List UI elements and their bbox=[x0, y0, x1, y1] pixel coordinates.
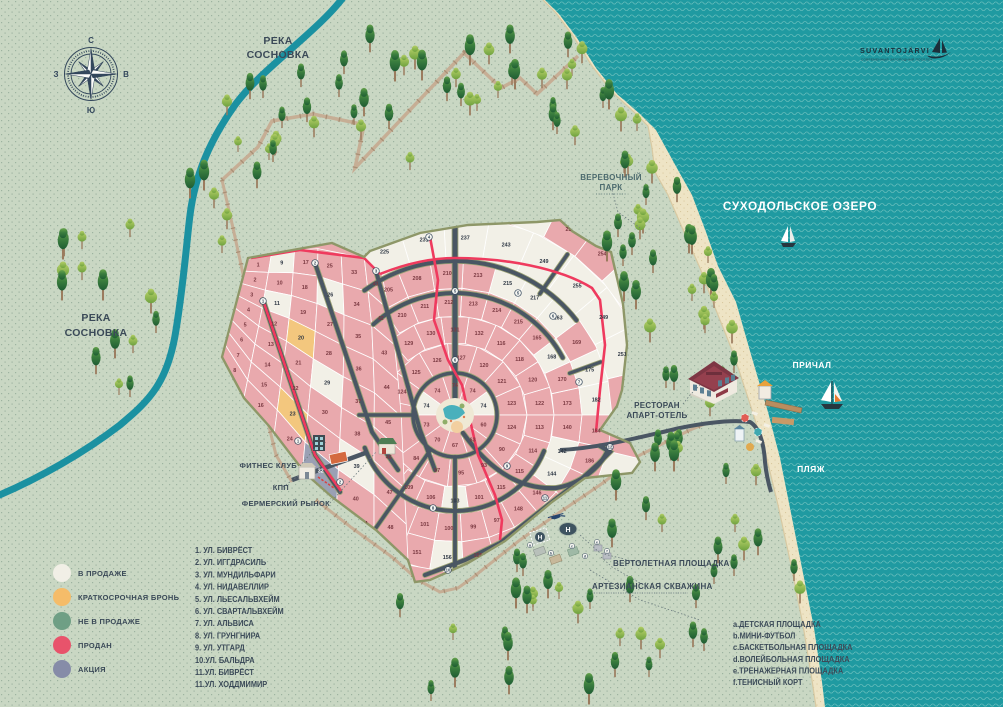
svg-text:217: 217 bbox=[530, 296, 539, 302]
svg-text:6: 6 bbox=[240, 338, 243, 344]
svg-text:45: 45 bbox=[385, 420, 391, 426]
svg-text:63: 63 bbox=[470, 437, 476, 443]
svg-text:116: 116 bbox=[497, 341, 506, 347]
svg-text:5. УЛ. ЛЬЕСАЛЬВХЕЙМ: 5. УЛ. ЛЬЕСАЛЬВХЕЙМ bbox=[195, 594, 280, 604]
svg-text:КРАТКОСРОЧНАЯ БРОНЬ: КРАТКОСРОЧНАЯ БРОНЬ bbox=[78, 593, 180, 602]
svg-text:КПП: КПП bbox=[273, 483, 289, 492]
svg-text:208: 208 bbox=[413, 276, 422, 282]
svg-text:120: 120 bbox=[480, 363, 489, 369]
svg-text:З: З bbox=[53, 70, 58, 79]
svg-text:13: 13 bbox=[268, 342, 274, 348]
svg-text:35: 35 bbox=[355, 334, 361, 340]
svg-text:22: 22 bbox=[293, 386, 299, 392]
svg-text:Ю: Ю bbox=[87, 106, 95, 115]
svg-text:126: 126 bbox=[433, 358, 442, 364]
svg-text:148: 148 bbox=[514, 507, 523, 513]
svg-text:129: 129 bbox=[404, 341, 413, 347]
svg-text:ПЛЯЖ: ПЛЯЖ bbox=[797, 464, 825, 474]
svg-text:H: H bbox=[565, 527, 570, 534]
svg-text:В ПРОДАЖЕ: В ПРОДАЖЕ bbox=[78, 569, 127, 578]
svg-text:121: 121 bbox=[497, 379, 506, 385]
svg-text:5: 5 bbox=[244, 323, 247, 329]
svg-text:40: 40 bbox=[353, 496, 359, 502]
svg-text:30: 30 bbox=[322, 410, 328, 416]
svg-text:8. УЛ. ГРУНГНИРА: 8. УЛ. ГРУНГНИРА bbox=[195, 631, 260, 641]
svg-text:251: 251 bbox=[618, 352, 627, 358]
svg-text:47: 47 bbox=[387, 490, 393, 496]
svg-text:3. УЛ. МУНДИЛЬФАРИ: 3. УЛ. МУНДИЛЬФАРИ bbox=[195, 570, 276, 580]
svg-text:с.БАСКЕТБОЛЬНАЯ ПЛОЩАДКА: с.БАСКЕТБОЛЬНАЯ ПЛОЩАДКА bbox=[733, 643, 853, 653]
svg-text:249: 249 bbox=[599, 315, 608, 321]
svg-text:АПАРТ-ОТЕЛЬ: АПАРТ-ОТЕЛЬ bbox=[626, 411, 687, 420]
svg-text:ФИТНЕС КЛУБ: ФИТНЕС КЛУБ bbox=[240, 461, 298, 470]
svg-text:SUVANTOJÄRVI: SUVANTOJÄRVI bbox=[860, 46, 930, 55]
svg-text:212: 212 bbox=[444, 300, 453, 306]
svg-text:6. УЛ. СВАРТАЛЬВХЕЙМ: 6. УЛ. СВАРТАЛЬВХЕЙМ bbox=[195, 607, 284, 617]
svg-text:В: В bbox=[123, 70, 129, 79]
svg-text:99: 99 bbox=[470, 525, 476, 531]
svg-text:115: 115 bbox=[497, 485, 506, 491]
svg-text:14: 14 bbox=[265, 362, 271, 368]
svg-text:74: 74 bbox=[452, 383, 458, 389]
svg-text:39: 39 bbox=[354, 464, 360, 470]
svg-text:34: 34 bbox=[354, 302, 360, 308]
svg-text:7: 7 bbox=[237, 353, 240, 359]
svg-text:60: 60 bbox=[481, 422, 487, 428]
svg-text:48: 48 bbox=[388, 525, 394, 531]
svg-text:101: 101 bbox=[475, 495, 484, 501]
svg-text:18: 18 bbox=[302, 285, 308, 291]
svg-text:1: 1 bbox=[257, 262, 260, 268]
svg-text:73: 73 bbox=[424, 422, 430, 428]
svg-text:РЕКА: РЕКА bbox=[263, 35, 292, 47]
svg-text:21: 21 bbox=[295, 361, 301, 367]
svg-text:9. УЛ. УТГАРД: 9. УЛ. УТГАРД bbox=[195, 643, 245, 653]
svg-text:е.ТРЕНАЖЕРНАЯ ПЛОЩАДКА: е.ТРЕНАЖЕРНАЯ ПЛОЩАДКА bbox=[733, 666, 844, 676]
svg-text:144: 144 bbox=[547, 471, 556, 477]
svg-text:НЕ В ПРОДАЖЕ: НЕ В ПРОДАЖЕ bbox=[78, 617, 140, 626]
svg-text:44: 44 bbox=[384, 385, 390, 391]
svg-text:90: 90 bbox=[499, 447, 505, 453]
svg-text:d: d bbox=[584, 554, 586, 558]
svg-text:РЕСТОРАН: РЕСТОРАН bbox=[634, 401, 680, 410]
svg-text:4. УЛ. НИДАВЕЛЛИР: 4. УЛ. НИДАВЕЛЛИР bbox=[195, 582, 269, 592]
svg-text:7. УЛ. АЛЬВИСА: 7. УЛ. АЛЬВИСА bbox=[195, 619, 254, 629]
svg-text:125: 125 bbox=[412, 370, 421, 376]
svg-text:101: 101 bbox=[420, 522, 429, 528]
svg-text:67: 67 bbox=[452, 443, 458, 449]
svg-text:33: 33 bbox=[351, 270, 357, 276]
svg-text:225: 225 bbox=[380, 250, 389, 256]
svg-text:131: 131 bbox=[451, 328, 460, 334]
svg-text:74: 74 bbox=[481, 404, 487, 410]
svg-text:ПАРК: ПАРК bbox=[600, 183, 623, 192]
svg-text:20: 20 bbox=[298, 335, 304, 341]
svg-text:37: 37 bbox=[355, 399, 361, 405]
svg-text:15: 15 bbox=[261, 383, 267, 389]
svg-text:8: 8 bbox=[233, 368, 236, 374]
svg-text:2. УЛ. ИГГДРАСИЛЬ: 2. УЛ. ИГГДРАСИЛЬ bbox=[195, 558, 266, 568]
svg-text:СОСНОВКА: СОСНОВКА bbox=[247, 49, 310, 61]
svg-text:H: H bbox=[538, 535, 543, 542]
svg-text:124: 124 bbox=[507, 425, 516, 431]
svg-text:32: 32 bbox=[318, 469, 324, 475]
svg-text:11.УЛ. БИВРЁСТ: 11.УЛ. БИВРЁСТ bbox=[195, 668, 254, 678]
svg-text:29: 29 bbox=[324, 380, 330, 386]
svg-text:215: 215 bbox=[514, 320, 523, 326]
svg-text:f.ТЕНИСНЫЙ КОРТ: f.ТЕНИСНЫЙ КОРТ bbox=[733, 678, 803, 688]
svg-text:173: 173 bbox=[563, 401, 572, 407]
svg-text:23: 23 bbox=[290, 411, 296, 417]
svg-text:93: 93 bbox=[481, 463, 487, 469]
svg-text:95: 95 bbox=[458, 471, 464, 477]
svg-text:140: 140 bbox=[563, 425, 572, 431]
svg-text:27: 27 bbox=[327, 322, 333, 328]
svg-text:74: 74 bbox=[470, 389, 476, 395]
svg-text:84: 84 bbox=[413, 456, 419, 462]
svg-text:151: 151 bbox=[413, 550, 422, 556]
svg-text:41: 41 bbox=[373, 281, 379, 287]
svg-text:46: 46 bbox=[386, 455, 392, 461]
svg-text:142: 142 bbox=[558, 449, 567, 455]
svg-text:1. УЛ. БИВРЁСТ: 1. УЛ. БИВРЁСТ bbox=[195, 546, 252, 556]
svg-text:28: 28 bbox=[326, 351, 332, 357]
svg-text:170: 170 bbox=[558, 377, 567, 383]
svg-text:СУХОДОЛЬСКОЕ ОЗЕРО: СУХОДОЛЬСКОЕ ОЗЕРО bbox=[723, 199, 877, 213]
svg-text:120: 120 bbox=[528, 378, 537, 384]
svg-text:214: 214 bbox=[492, 308, 501, 314]
svg-text:210: 210 bbox=[398, 313, 407, 319]
svg-text:ПРОДАН: ПРОДАН bbox=[78, 641, 112, 650]
svg-text:175: 175 bbox=[585, 368, 594, 374]
svg-text:АРТЕЗИАНСКАЯ СКВАЖИНА: АРТЕЗИАНСКАЯ СКВАЖИНА bbox=[592, 582, 713, 591]
svg-text:b.МИНИ-ФУТБОЛ: b.МИНИ-ФУТБОЛ bbox=[733, 631, 796, 641]
svg-text:243: 243 bbox=[502, 243, 511, 249]
svg-text:109: 109 bbox=[404, 485, 413, 491]
svg-text:РЕКА: РЕКА bbox=[81, 312, 110, 324]
svg-text:12: 12 bbox=[608, 445, 613, 450]
svg-text:3: 3 bbox=[250, 292, 253, 298]
svg-text:186: 186 bbox=[585, 458, 594, 464]
svg-text:74: 74 bbox=[434, 389, 440, 395]
svg-text:169: 169 bbox=[572, 340, 581, 346]
svg-text:СОСНОВКА: СОСНОВКА bbox=[65, 327, 128, 339]
svg-text:210: 210 bbox=[443, 271, 452, 277]
svg-text:254: 254 bbox=[598, 252, 607, 258]
svg-text:249: 249 bbox=[540, 259, 549, 265]
svg-text:182: 182 bbox=[592, 398, 601, 404]
svg-text:113: 113 bbox=[535, 425, 544, 431]
svg-text:70: 70 bbox=[434, 437, 440, 443]
svg-text:36: 36 bbox=[356, 367, 362, 373]
svg-text:106: 106 bbox=[426, 495, 435, 501]
svg-text:c: c bbox=[571, 544, 573, 548]
svg-text:12: 12 bbox=[271, 321, 277, 327]
svg-text:74: 74 bbox=[424, 404, 430, 410]
svg-text:43: 43 bbox=[381, 350, 387, 356]
svg-text:213: 213 bbox=[469, 302, 478, 308]
svg-text:122: 122 bbox=[535, 401, 544, 407]
svg-text:211: 211 bbox=[420, 304, 429, 310]
svg-text:168: 168 bbox=[547, 355, 556, 361]
svg-text:213: 213 bbox=[474, 273, 483, 279]
svg-text:97: 97 bbox=[494, 518, 500, 524]
svg-text:ВЕРЕВОЧНЫЙ: ВЕРЕВОЧНЫЙ bbox=[580, 173, 642, 182]
svg-text:10: 10 bbox=[277, 281, 283, 287]
svg-text:d.ВОЛЕЙБОЛЬНАЯ ПЛОЩАДКА: d.ВОЛЕЙБОЛЬНАЯ ПЛОЩАДКА bbox=[733, 654, 850, 664]
svg-text:42: 42 bbox=[378, 316, 384, 322]
svg-text:100: 100 bbox=[444, 526, 453, 532]
svg-text:156: 156 bbox=[443, 555, 452, 561]
svg-text:124: 124 bbox=[398, 389, 407, 395]
svg-text:2: 2 bbox=[254, 277, 257, 283]
svg-text:215: 215 bbox=[503, 281, 512, 287]
svg-text:205: 205 bbox=[384, 288, 393, 294]
svg-text:16: 16 bbox=[258, 403, 264, 409]
svg-text:СОВРЕМЕННЫЙ ЗАГОРОДНЫЙ ПОСЕЛОК: СОВРЕМЕННЫЙ ЗАГОРОДНЫЙ ПОСЕЛОК bbox=[861, 58, 933, 62]
svg-text:а.ДЕТСКАЯ ПЛОЩАДКА: а.ДЕТСКАЯ ПЛОЩАДКА bbox=[733, 620, 821, 630]
svg-text:24: 24 bbox=[287, 437, 293, 443]
svg-text:255: 255 bbox=[573, 284, 582, 290]
svg-text:e: e bbox=[596, 540, 598, 544]
svg-text:118: 118 bbox=[515, 357, 524, 363]
svg-text:ВЕРТОЛЕТНАЯ ПЛОЩАДКА: ВЕРТОЛЕТНАЯ ПЛОЩАДКА bbox=[613, 559, 730, 568]
svg-text:11: 11 bbox=[543, 496, 548, 501]
svg-text:25: 25 bbox=[327, 264, 333, 270]
svg-text:123: 123 bbox=[507, 401, 516, 407]
svg-text:165: 165 bbox=[533, 335, 542, 341]
svg-text:ПРИЧАЛ: ПРИЧАЛ bbox=[792, 360, 831, 370]
svg-text:10.УЛ. БАЛЬДРА: 10.УЛ. БАЛЬДРА bbox=[195, 655, 255, 665]
svg-text:103: 103 bbox=[451, 499, 460, 505]
svg-text:132: 132 bbox=[475, 331, 484, 337]
svg-text:114: 114 bbox=[528, 449, 537, 455]
svg-text:184: 184 bbox=[592, 428, 601, 434]
svg-text:146: 146 bbox=[533, 491, 542, 497]
svg-text:11.УЛ. ХОДДМИМИР: 11.УЛ. ХОДДМИМИР bbox=[195, 680, 267, 690]
svg-text:38: 38 bbox=[354, 431, 360, 437]
svg-text:11: 11 bbox=[274, 301, 280, 307]
svg-text:237: 237 bbox=[461, 235, 470, 241]
svg-text:10: 10 bbox=[446, 568, 451, 573]
svg-text:4: 4 bbox=[247, 308, 250, 314]
svg-text:17: 17 bbox=[303, 260, 309, 266]
svg-text:19: 19 bbox=[300, 310, 306, 316]
svg-text:9: 9 bbox=[280, 260, 283, 266]
svg-text:ФЕРМЕРСКИЙ РЫНОК: ФЕРМЕРСКИЙ РЫНОК bbox=[242, 499, 330, 508]
svg-text:АКЦИЯ: АКЦИЯ bbox=[78, 665, 106, 674]
svg-text:26: 26 bbox=[327, 293, 333, 299]
svg-text:С: С bbox=[88, 36, 94, 45]
svg-text:97: 97 bbox=[434, 468, 440, 474]
svg-text:130: 130 bbox=[426, 331, 435, 337]
svg-text:115: 115 bbox=[515, 469, 524, 475]
